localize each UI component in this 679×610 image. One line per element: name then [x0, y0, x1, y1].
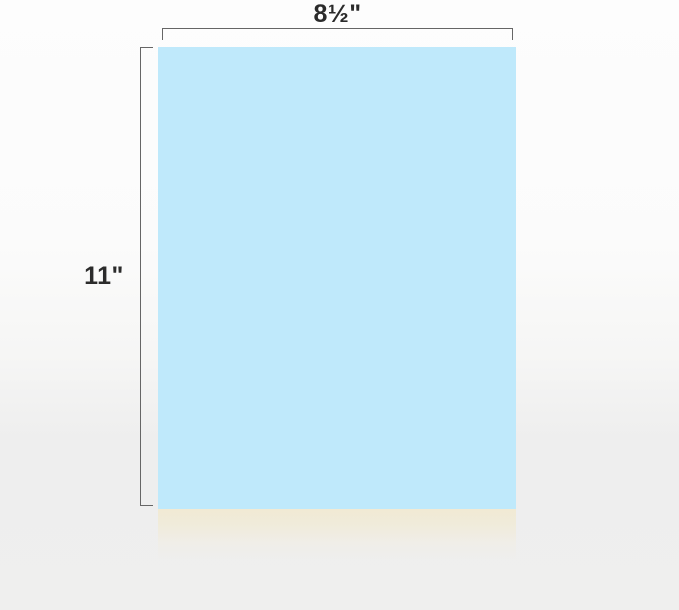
paper-sheet: [158, 47, 516, 509]
paper-stack-edge: [158, 509, 516, 561]
height-label: 11": [76, 264, 132, 289]
height-dimension-bracket: [140, 47, 153, 506]
width-label: 8½": [162, 2, 513, 27]
paper-dimensions-diagram: 8½" 11": [0, 0, 679, 610]
width-dimension-bracket: [162, 28, 513, 40]
